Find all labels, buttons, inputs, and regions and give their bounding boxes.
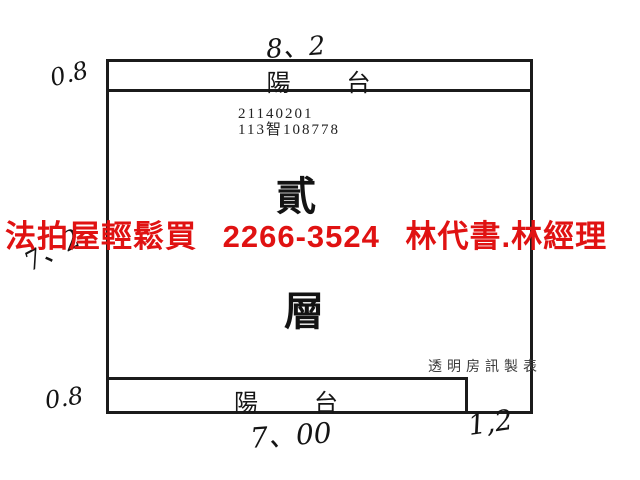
case-id-line1: 21140201: [238, 106, 340, 122]
top-balcony-box: 陽 台: [106, 59, 533, 92]
measurement-top-width: 8、2: [265, 25, 327, 66]
floor-label-char-2: 層: [284, 279, 324, 337]
maker-credit-label: 透明房訊製表: [428, 356, 542, 376]
top-balcony-label: 陽 台: [267, 63, 373, 98]
ad-overlay-text: 法拍屋輕鬆買 2266-3524 林代書.林經理: [0, 211, 640, 256]
floorplan-canvas: 陽 台 陽 台 21140201 113智108778 貳 層 透明房訊製表 8…: [0, 0, 640, 480]
measurement-upper-left-depth: 0.8: [47, 56, 91, 92]
measurement-bottom-width: 7、00: [249, 411, 333, 457]
bottom-balcony-box: 陽 台: [106, 377, 468, 414]
measurement-lower-left-depth: 0.8: [43, 381, 85, 414]
measurement-bottom-right-width: 1,2: [466, 403, 515, 442]
case-id-block: 21140201 113智108778: [238, 106, 340, 138]
case-id-line2: 113智108778: [238, 122, 340, 138]
